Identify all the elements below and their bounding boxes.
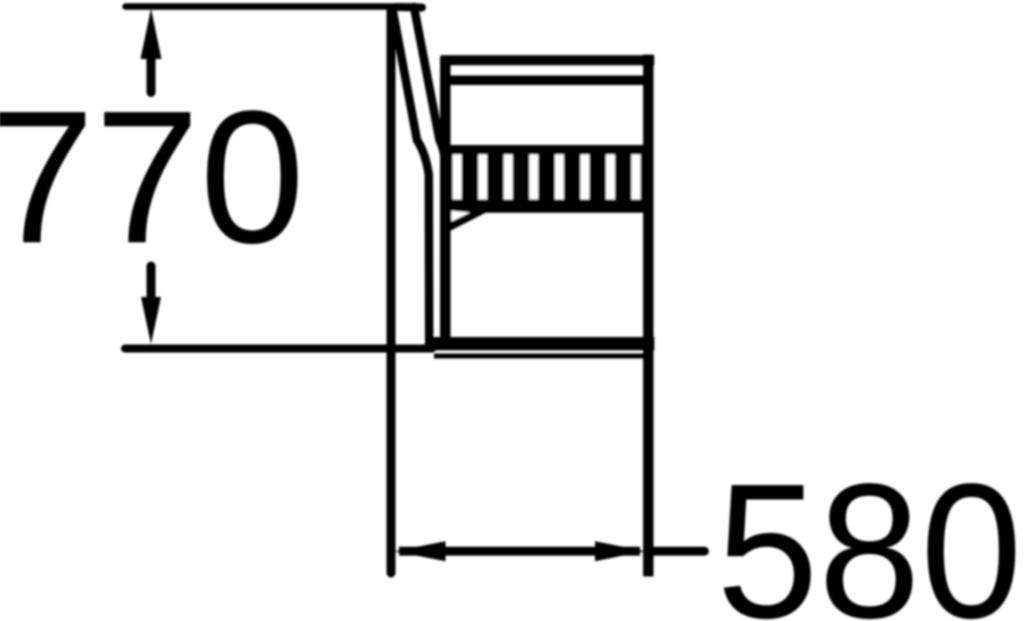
svg-text:580: 580: [716, 443, 1022, 621]
svg-text:770: 770: [0, 72, 305, 283]
